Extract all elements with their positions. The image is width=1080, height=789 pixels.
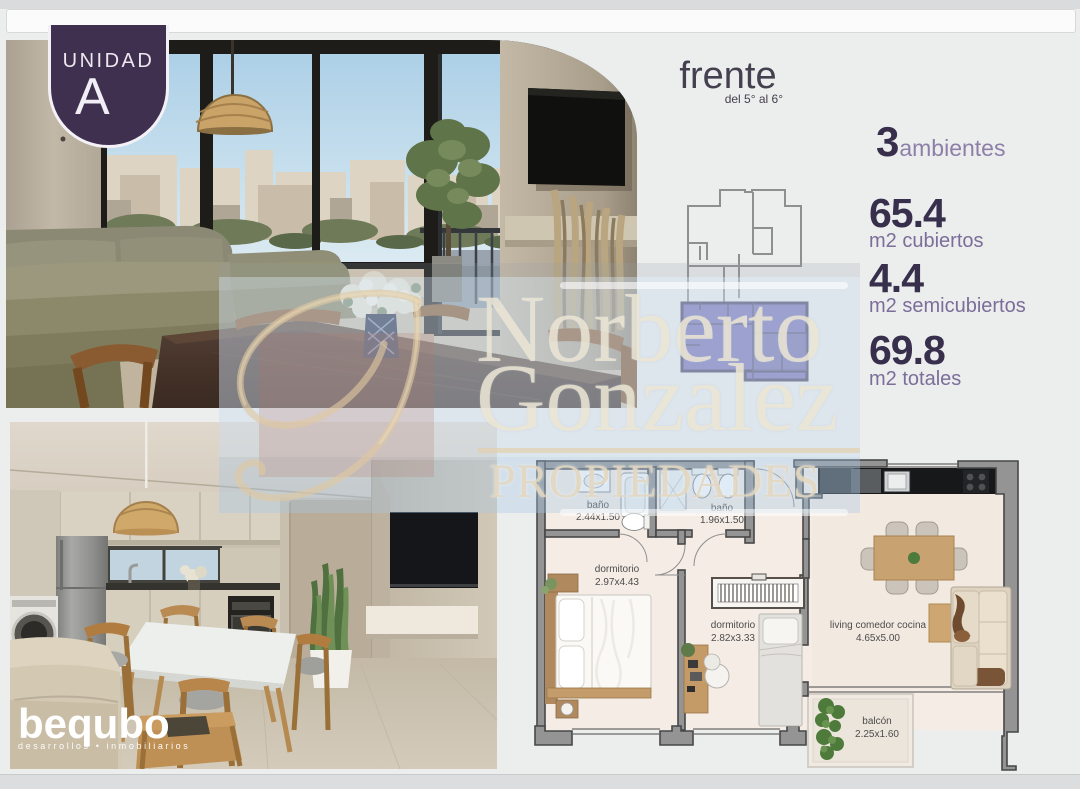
svg-text:2.82x3.33: 2.82x3.33 [711, 633, 755, 644]
svg-text:dormitorio: dormitorio [595, 564, 640, 575]
svg-text:dormitorio: dormitorio [711, 620, 756, 631]
svg-text:living comedor cocina: living comedor cocina [830, 620, 927, 631]
svg-text:4.65x5.00: 4.65x5.00 [856, 633, 900, 644]
svg-text:2.25x1.60: 2.25x1.60 [855, 729, 899, 740]
svg-text:1.96x1.50: 1.96x1.50 [700, 515, 744, 526]
svg-text:balcón: balcón [862, 716, 891, 727]
svg-text:2.97x4.43: 2.97x4.43 [595, 577, 639, 588]
